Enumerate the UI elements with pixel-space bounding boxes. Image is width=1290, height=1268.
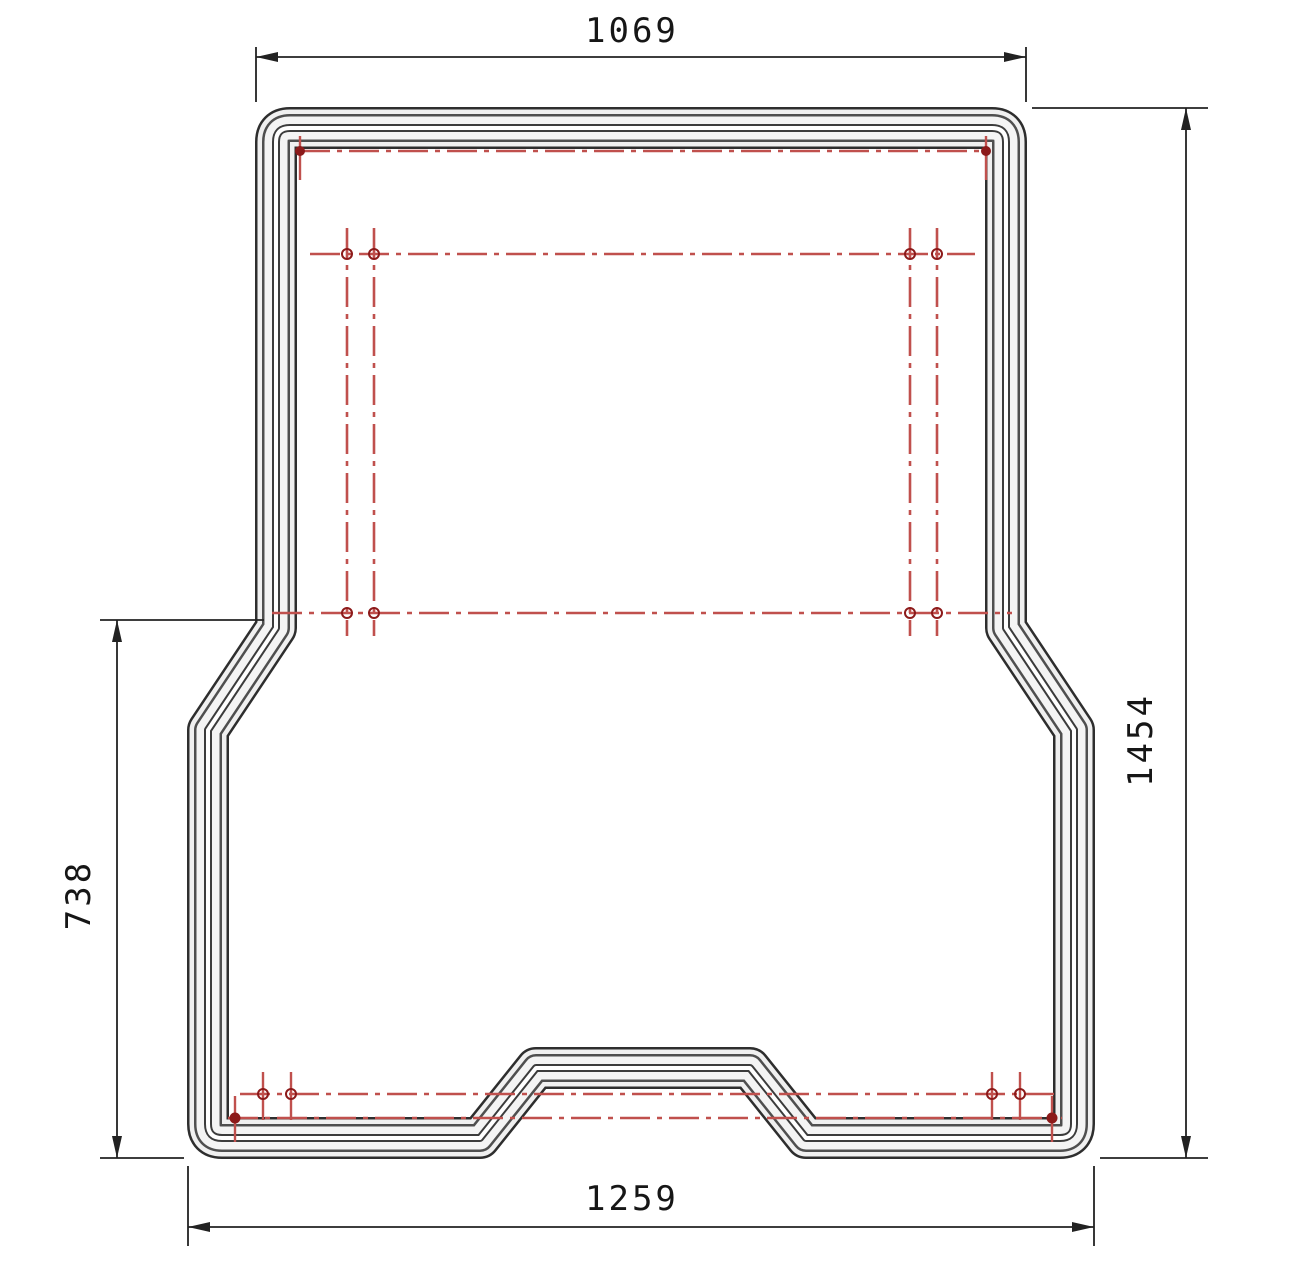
dim-left-label: 738 bbox=[59, 860, 99, 930]
technical-drawing: 1069 1454 738 1259 bbox=[0, 0, 1290, 1268]
mat-rim bbox=[208, 128, 1074, 1138]
dimension-bottom-width: 1259 bbox=[188, 1166, 1094, 1246]
dimension-top-width: 1069 bbox=[256, 11, 1026, 102]
drawing-page: 1069 1454 738 1259 bbox=[0, 0, 1290, 1268]
dim-right-label: 1454 bbox=[1121, 693, 1161, 787]
dim-top-label: 1069 bbox=[585, 11, 679, 51]
dim-bottom-label: 1259 bbox=[585, 1179, 679, 1219]
